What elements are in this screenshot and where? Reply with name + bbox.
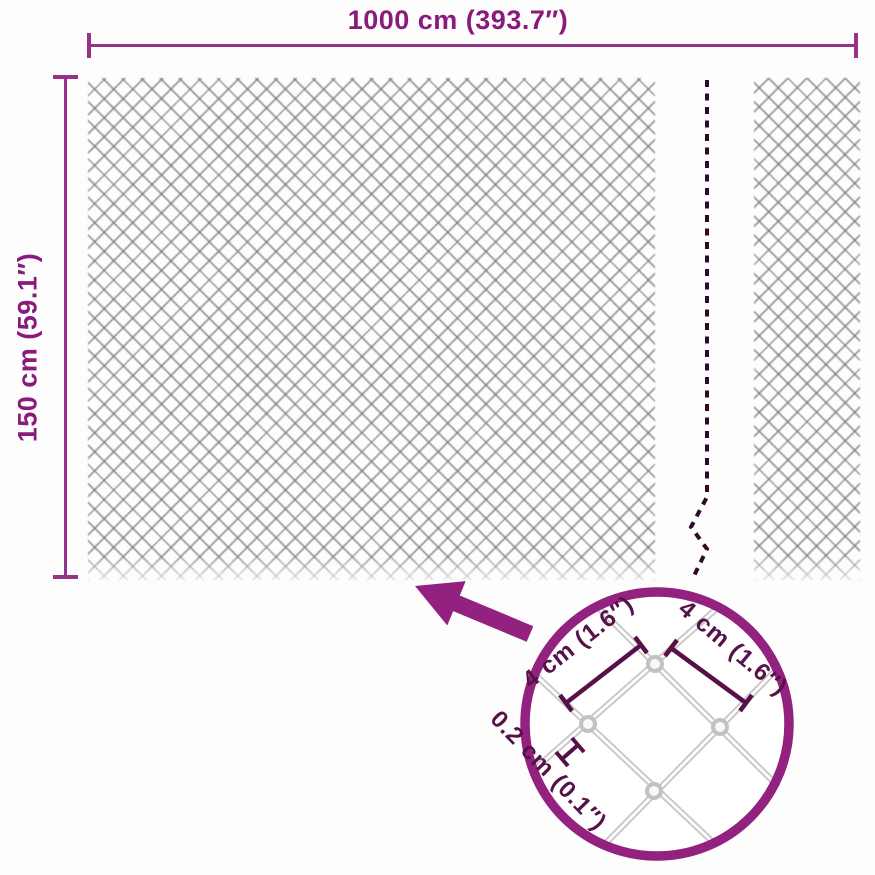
product-dimension-diagram: 1000 cm (393.7″) 150 cm (59.1″): [0, 0, 875, 875]
wire-knuckle-top: [648, 657, 662, 671]
wire-knuckle-bottom: [647, 784, 661, 798]
diagram-overlay: 4 cm (1.6″) 4 cm (1.6″) 0.2 cm (0.1″): [0, 0, 875, 875]
detail-magnifier-circle: 4 cm (1.6″) 4 cm (1.6″) 0.2 cm (0.1″): [405, 488, 875, 875]
wire-knuckle-left: [581, 717, 595, 731]
length-break-dashed-line: [691, 80, 707, 578]
zoom-arrow-icon: [415, 581, 533, 642]
wire-knuckle-right: [713, 720, 727, 734]
